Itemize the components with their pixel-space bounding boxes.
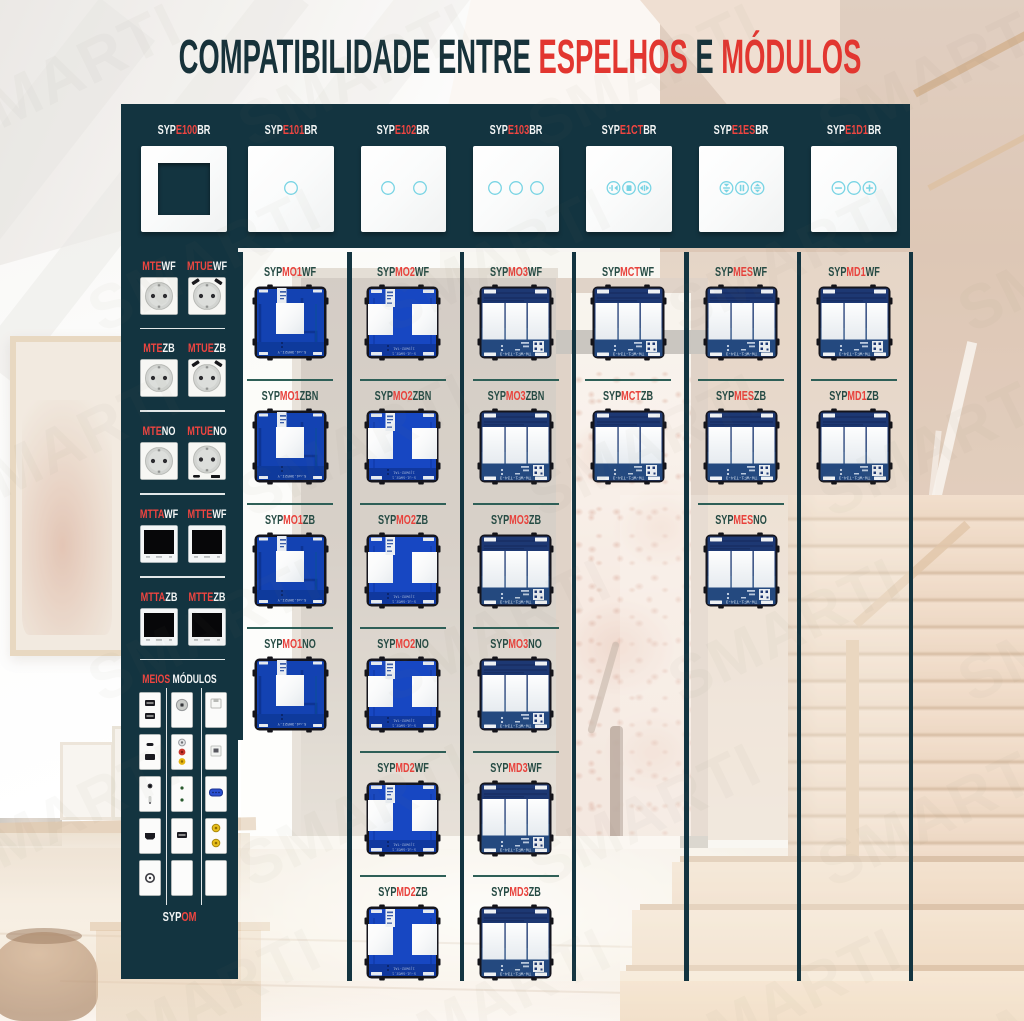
svg-text:TW-WF1-T34-3: TW-WF1-T34-3	[499, 970, 531, 975]
svg-text:TW-WF1-T34-3: TW-WF1-T34-3	[725, 598, 757, 603]
svg-text:5-u1-5WO2.1: 5-u1-5WO2.1	[392, 598, 416, 602]
svg-text:TW-WF1-T34-3: TW-WF1-T34-3	[725, 350, 757, 355]
svg-text:TW-WF1-T34-3: TW-WF1-T34-3	[499, 846, 531, 851]
svg-text:1(5WO2-7A1: 1(5WO2-7A1	[394, 593, 416, 598]
svg-text:TW-WF1-T34-3: TW-WF1-T34-3	[499, 350, 531, 355]
svg-text:1(5WO2-7A1: 1(5WO2-7A1	[394, 345, 416, 350]
svg-text:TW-WF1-T34-3: TW-WF1-T34-3	[838, 350, 870, 355]
svg-text:5-u1-5WO2.1: 5-u1-5WO2.1	[392, 722, 416, 726]
svg-text:5-u1-5WO2.1: 5-u1-5WO2.1	[392, 350, 416, 354]
svg-text:5-u1-5WO2.1: 5-u1-5WO2.1	[392, 846, 416, 850]
svg-text:1(5WO2-7A1: 1(5WO2-7A1	[394, 965, 416, 970]
svg-text:5-u1-5WO2.1: 5-u1-5WO2.1	[392, 970, 416, 974]
svg-text:1(5WO2-7A1: 1(5WO2-7A1	[394, 469, 416, 474]
svg-text:TW-WF1-T34-3: TW-WF1-T34-3	[499, 722, 531, 727]
svg-text:1(5WO2-7A1: 1(5WO2-7A1	[394, 841, 416, 846]
svg-text:TW-WF1-T34-3: TW-WF1-T34-3	[612, 350, 644, 355]
svg-text:TW-WF1-T34-3: TW-WF1-T34-3	[499, 474, 531, 479]
svg-text:5-u1-5WO2.1: 5-u1-5WO2.1	[392, 474, 416, 478]
svg-text:TW-WF1-T34-3: TW-WF1-T34-3	[838, 474, 870, 479]
svg-text:TW-WF1-T34-3: TW-WF1-T34-3	[499, 598, 531, 603]
svg-text:TW-WF1-T34-3: TW-WF1-T34-3	[725, 474, 757, 479]
svg-text:5-u4-3HR2I-Y: 5-u4-3HR2I-Y	[277, 721, 306, 725]
svg-text:5-u4-3HR2I-Y: 5-u4-3HR2I-Y	[277, 473, 306, 477]
svg-text:5-u4-3HR2I-Y: 5-u4-3HR2I-Y	[277, 349, 306, 353]
svg-text:TW-WF1-T34-3: TW-WF1-T34-3	[612, 474, 644, 479]
svg-text:1(5WO2-7A1: 1(5WO2-7A1	[394, 717, 416, 722]
svg-text:5-u4-3HR2I-Y: 5-u4-3HR2I-Y	[277, 597, 306, 601]
